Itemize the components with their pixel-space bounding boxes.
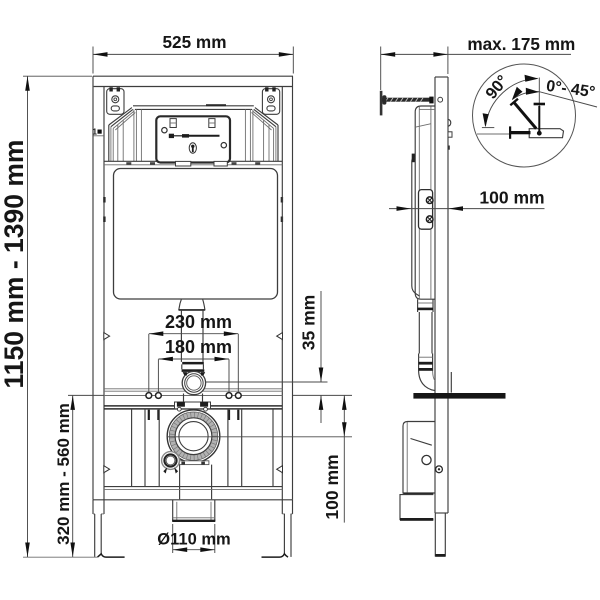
- svg-text:1150 mm - 1390 mm: 1150 mm - 1390 mm: [0, 140, 29, 389]
- svg-text:35 mm: 35 mm: [299, 295, 319, 350]
- svg-text:230 mm: 230 mm: [165, 312, 232, 332]
- svg-text:100 mm: 100 mm: [479, 188, 544, 208]
- svg-text:180 mm: 180 mm: [165, 337, 232, 357]
- svg-text:max. 175 mm: max. 175 mm: [467, 34, 575, 54]
- svg-text:320 mm - 560 mm: 320 mm - 560 mm: [54, 403, 73, 545]
- svg-text:100 mm: 100 mm: [322, 454, 342, 519]
- svg-text:Ø110 mm: Ø110 mm: [157, 531, 230, 549]
- svg-text:1: 1: [93, 128, 98, 137]
- svg-text:525 mm: 525 mm: [162, 32, 226, 52]
